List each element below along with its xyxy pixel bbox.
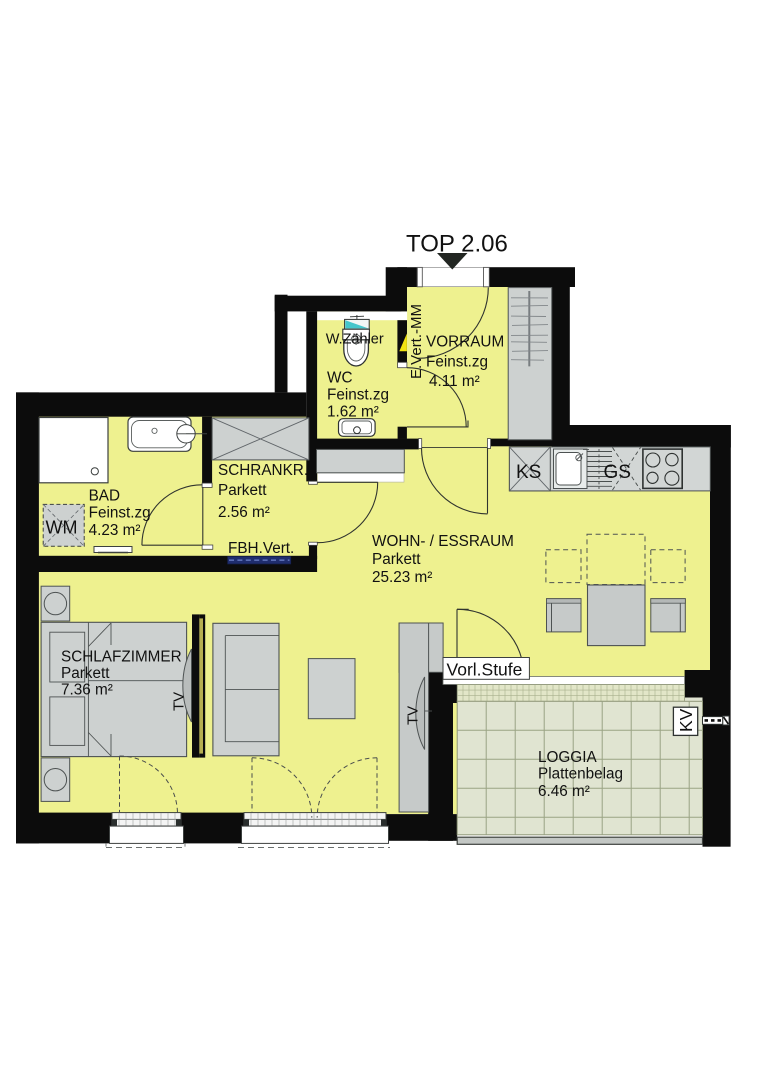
svg-text:Feinst.zg: Feinst.zg xyxy=(426,354,488,371)
svg-text:Feinst.zg: Feinst.zg xyxy=(327,387,389,404)
svg-text:WOHN- / ESSRAUM: WOHN- / ESSRAUM xyxy=(372,533,514,550)
svg-text:Parkett: Parkett xyxy=(372,551,421,568)
svg-text:1.62 m²: 1.62 m² xyxy=(327,404,379,421)
svg-text:SCHRANKR.: SCHRANKR. xyxy=(218,462,308,479)
svg-text:SCHLAFZIMMER: SCHLAFZIMMER xyxy=(61,649,182,666)
svg-text:TOP 2.06: TOP 2.06 xyxy=(406,231,508,258)
svg-text:KV: KV xyxy=(676,708,696,732)
svg-text:TV: TV xyxy=(405,706,422,725)
svg-text:4.23 m²: 4.23 m² xyxy=(89,522,141,539)
svg-text:TV: TV xyxy=(171,692,188,711)
svg-text:Parkett: Parkett xyxy=(218,482,267,499)
svg-text:Vorl.Stufe: Vorl.Stufe xyxy=(447,660,523,680)
svg-text:Plattenbelag: Plattenbelag xyxy=(538,766,623,783)
svg-text:LOGGIA: LOGGIA xyxy=(538,749,597,766)
svg-text:7.36 m²: 7.36 m² xyxy=(61,682,113,699)
svg-text:2.56 m²: 2.56 m² xyxy=(218,504,270,521)
svg-text:6.46 m²: 6.46 m² xyxy=(538,783,590,800)
svg-text:GS: GS xyxy=(604,462,631,483)
svg-text:VORRAUM: VORRAUM xyxy=(426,334,504,351)
svg-text:FBH.Vert.: FBH.Vert. xyxy=(228,540,294,557)
svg-text:BAD: BAD xyxy=(89,488,120,505)
svg-text:WC: WC xyxy=(327,370,353,387)
svg-text:E.Vert.-MM: E.Vert.-MM xyxy=(408,304,425,379)
svg-text:KS: KS xyxy=(516,462,541,483)
svg-text:Feinst.zg: Feinst.zg xyxy=(89,505,151,522)
svg-text:25.23 m²: 25.23 m² xyxy=(372,569,432,586)
svg-text:Parkett: Parkett xyxy=(61,665,110,682)
svg-text:4.11 m²: 4.11 m² xyxy=(429,373,480,390)
svg-text:W.Zähler: W.Zähler xyxy=(326,332,384,348)
svg-text:WM: WM xyxy=(46,518,78,538)
